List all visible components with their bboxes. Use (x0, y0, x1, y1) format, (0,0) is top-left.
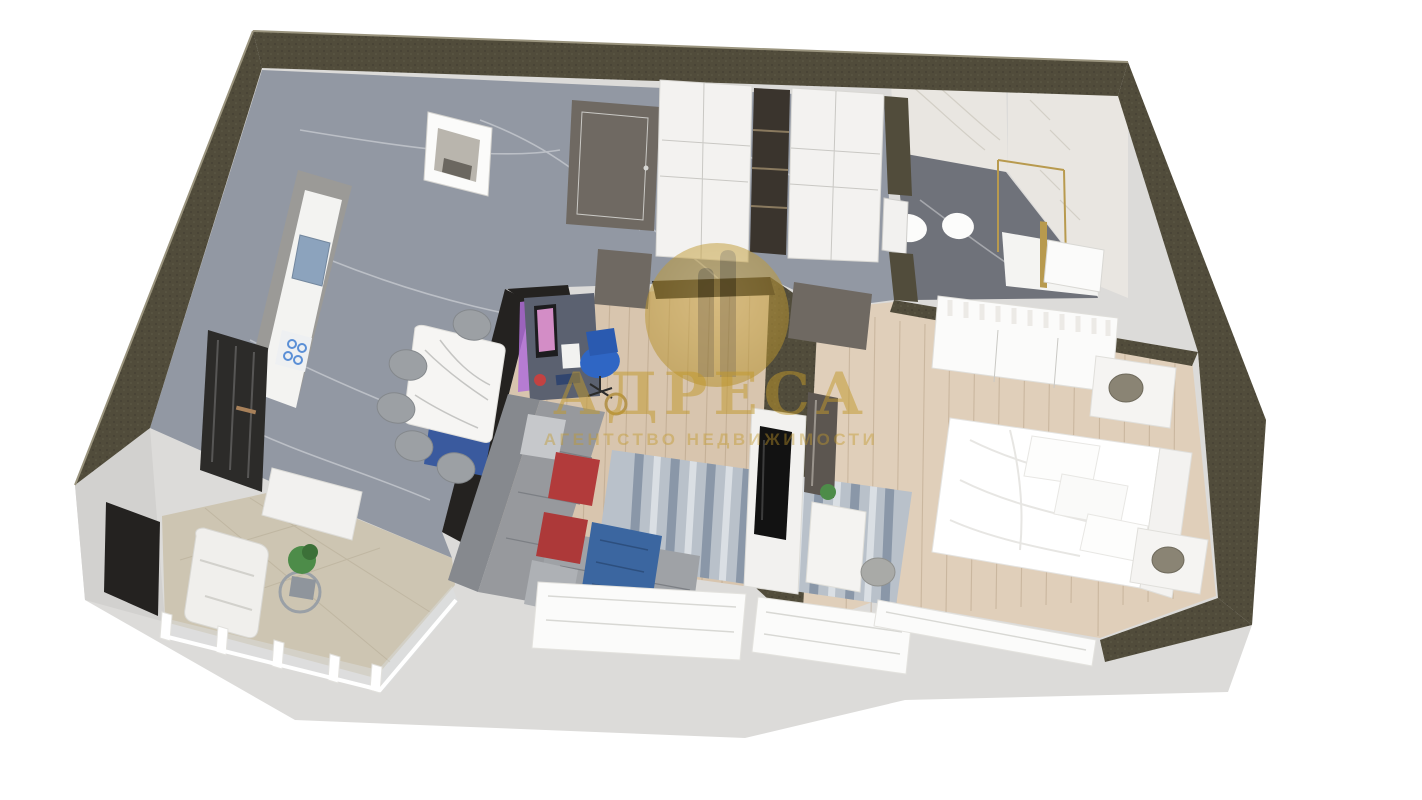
sofa-pillow-red-1 (548, 452, 600, 506)
dressing-plant (820, 484, 836, 500)
bathroom-wall-west-upper (884, 96, 912, 196)
bathroom-door (882, 198, 908, 254)
floorplan-render: АДРЕСА АГЕНТСТВО НЕДВИЖИМОСТИ (0, 0, 1422, 800)
balcony-armchair (185, 528, 269, 638)
monitor-screen (537, 308, 555, 352)
desk-plant-pot (534, 374, 546, 386)
dressing-table (806, 502, 866, 592)
office-chair-back (586, 328, 618, 356)
plant-pot (289, 576, 316, 600)
dressing-chair (861, 558, 895, 586)
bathroom (882, 66, 1128, 300)
plant-leaves-dark (302, 544, 318, 560)
wardrobe-right (788, 88, 884, 262)
entry-door-handle (644, 166, 649, 171)
dressing-mirror (804, 392, 838, 498)
living-room-door (594, 249, 652, 309)
apartment-3d-scene (0, 0, 1422, 800)
keyboard (561, 343, 581, 368)
nightstand-lamp-bottom (1152, 547, 1184, 573)
dining-table-marble-top (404, 325, 505, 442)
bedroom-door (788, 282, 872, 350)
sofa-pillow-red-2 (536, 512, 588, 564)
kitchen-tall-unit (200, 330, 268, 492)
nightstand-lamp-top (1109, 374, 1143, 402)
wardrobe-open-shelves (750, 88, 790, 255)
hall-wardrobes (656, 80, 884, 262)
tv-screen (754, 426, 792, 540)
